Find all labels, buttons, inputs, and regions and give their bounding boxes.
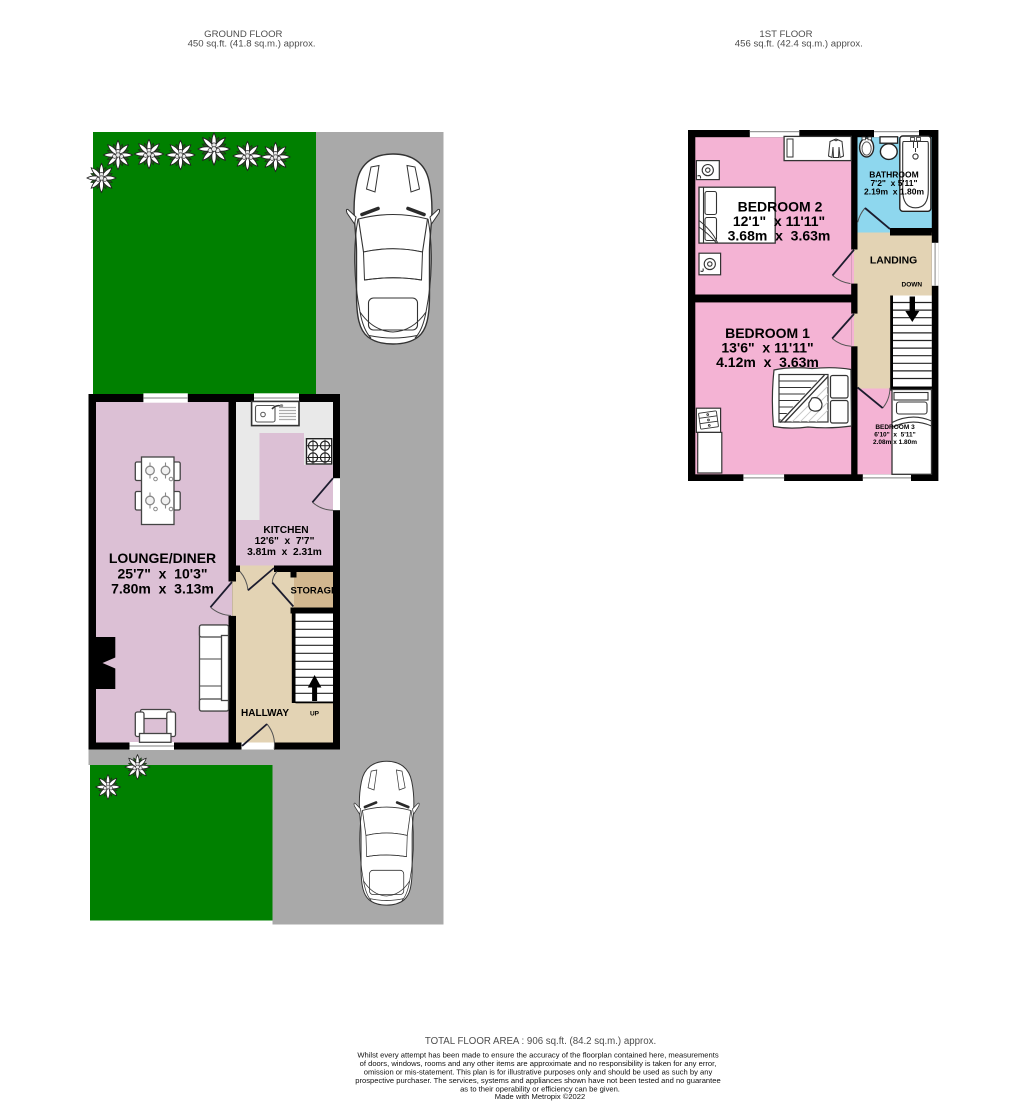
svg-text:LANDING: LANDING <box>870 255 917 266</box>
svg-text:STORAGE: STORAGE <box>291 586 338 597</box>
svg-text:2.19m x 1.80m: 2.19m x 1.80m <box>864 187 924 197</box>
svg-text:450 sq.ft. (41.8 sq.m.) approx: 450 sq.ft. (41.8 sq.m.) approx. <box>188 38 316 49</box>
svg-text:6'10" x 5'11": 6'10" x 5'11" <box>874 432 915 439</box>
svg-text:LOUNGE/DINER: LOUNGE/DINER <box>109 550 216 566</box>
svg-text:HALLWAY: HALLWAY <box>241 708 289 719</box>
svg-text:BEDROOM 3: BEDROOM 3 <box>875 424 915 431</box>
svg-text:TOTAL FLOOR AREA : 906 sq.ft.: TOTAL FLOOR AREA : 906 sq.ft. (84.2 sq.m… <box>425 1036 656 1047</box>
svg-text:2.08m x 1.80m: 2.08m x 1.80m <box>873 439 917 446</box>
svg-text:4.12m x 3.63m: 4.12m x 3.63m <box>716 354 819 370</box>
svg-text:3.81m x 2.31m: 3.81m x 2.31m <box>247 547 322 558</box>
svg-text:KITCHEN: KITCHEN <box>263 525 308 536</box>
svg-text:25'7" x 10'3": 25'7" x 10'3" <box>118 566 208 582</box>
svg-text:UP: UP <box>310 711 320 718</box>
svg-text:12'6" x 7'7": 12'6" x 7'7" <box>255 536 315 547</box>
svg-text:DOWN: DOWN <box>902 282 923 289</box>
svg-text:7.80m x 3.13m: 7.80m x 3.13m <box>111 581 214 597</box>
svg-text:456 sq.ft. (42.4 sq.m.) approx: 456 sq.ft. (42.4 sq.m.) approx. <box>735 38 863 49</box>
svg-text:3.68m x 3.63m: 3.68m x 3.63m <box>728 228 831 244</box>
svg-text:Made with Metropix ©2022: Made with Metropix ©2022 <box>495 1092 585 1101</box>
